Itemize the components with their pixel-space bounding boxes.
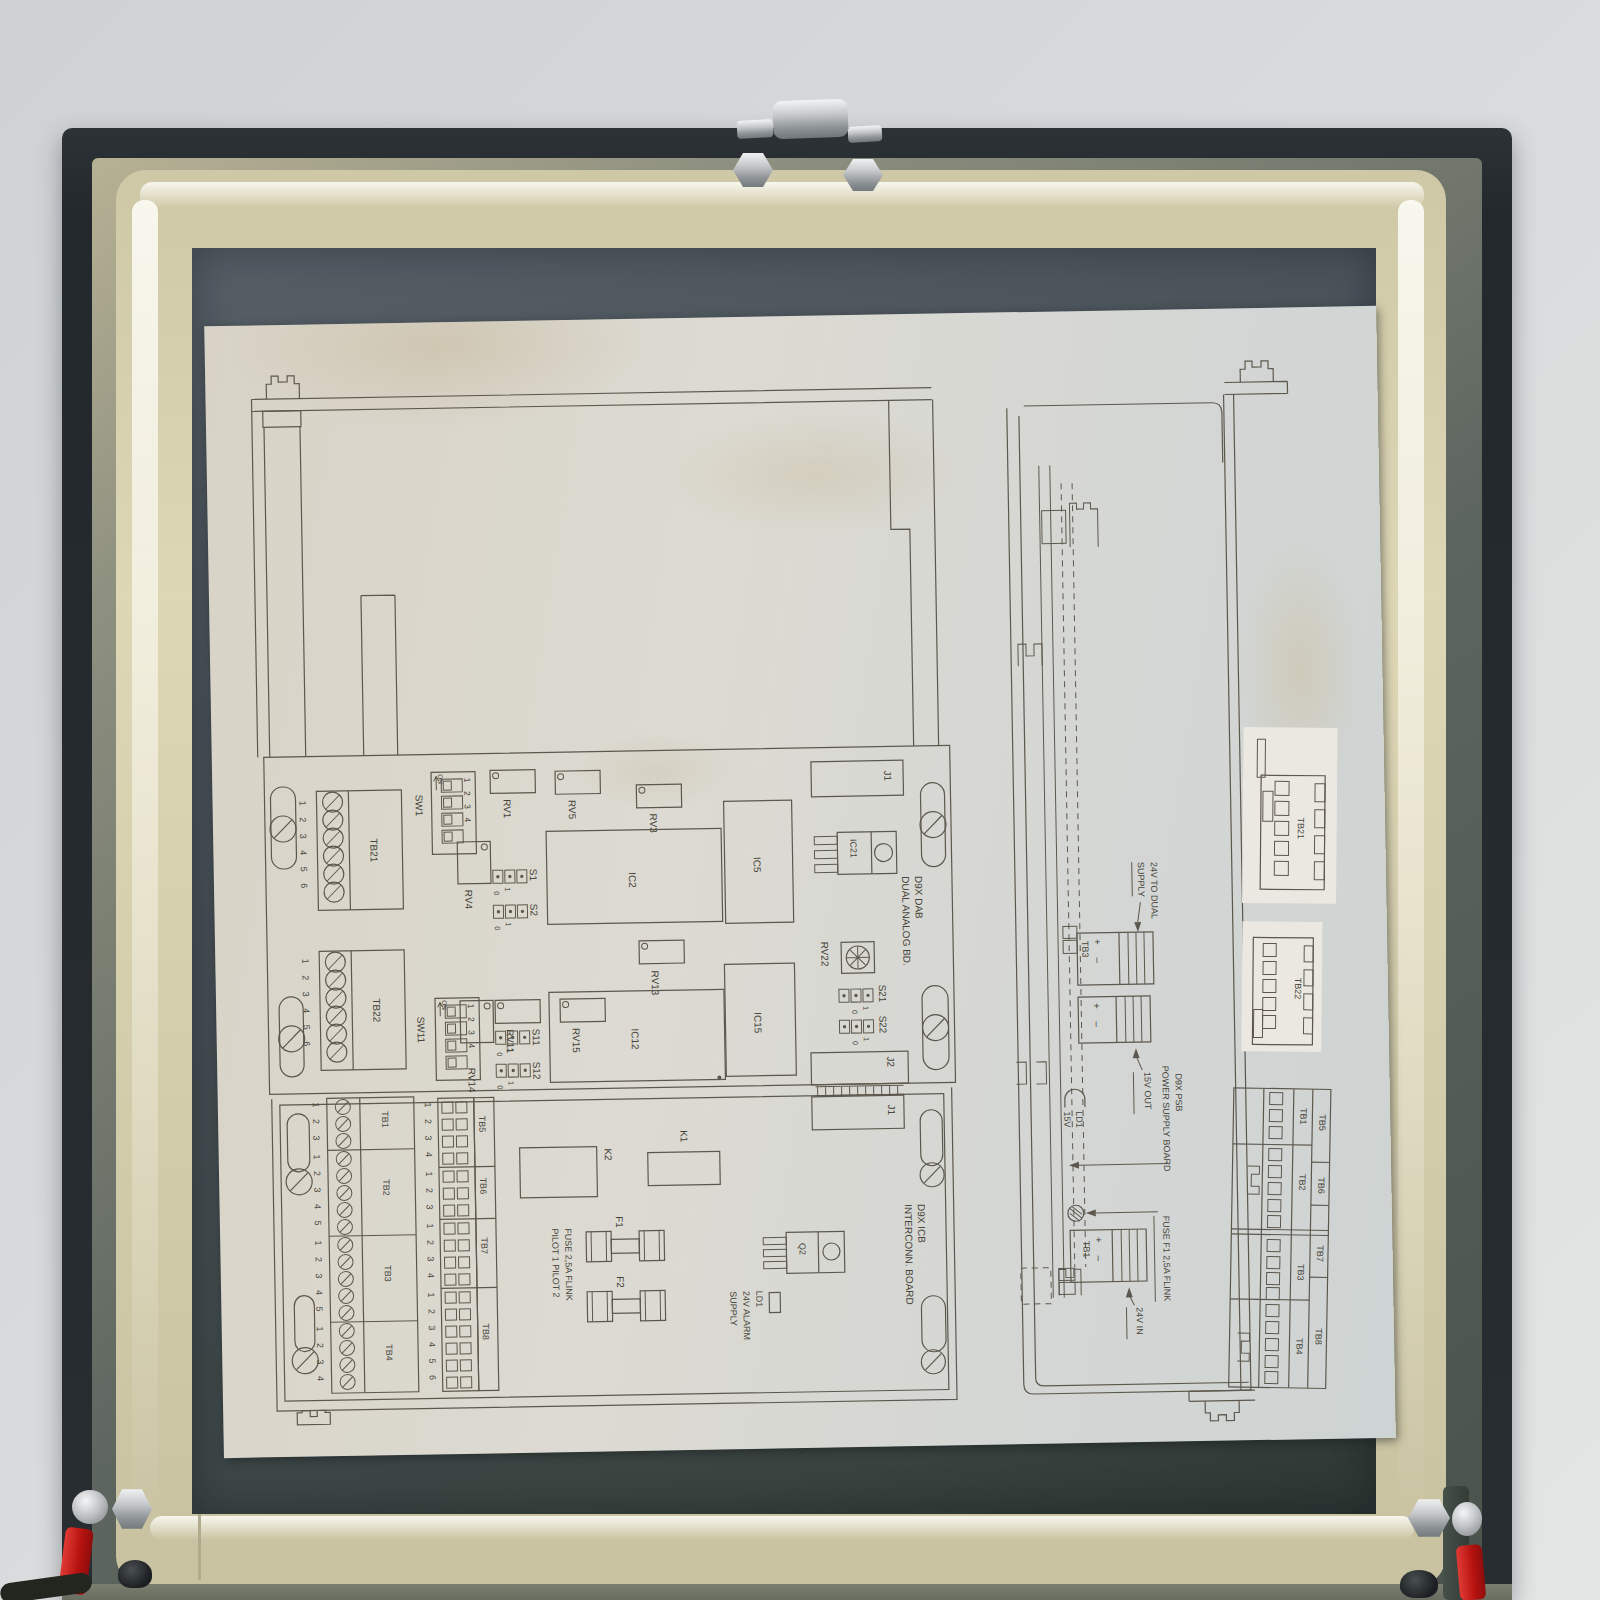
jumper-s21: S21 1 0	[839, 984, 889, 1014]
stack-tb5-label: TB5	[1317, 1114, 1327, 1131]
chassis-outline-lines	[251, 365, 939, 758]
ic15-chip: IC15	[724, 963, 796, 1076]
black-bolt-right	[1400, 1570, 1438, 1598]
psu-din-foot	[1205, 1400, 1239, 1421]
f2-label: F2	[615, 1276, 626, 1288]
ld1-note-line3: SUPPLY	[728, 1291, 739, 1326]
red-wire-terminal-right	[1456, 1544, 1487, 1600]
transistor-q2: Q2	[763, 1231, 845, 1273]
s22-pos1: 1	[862, 1037, 871, 1041]
fuse-f2: F2	[587, 1275, 666, 1321]
rv22-trimmer: RV22	[819, 941, 875, 974]
k2-label: K2	[603, 1148, 614, 1161]
tb21-detail-patch: TB21	[1242, 727, 1338, 904]
rv15-label: RV15	[571, 1028, 582, 1053]
stack-tb2-label: TB2	[1297, 1174, 1307, 1191]
rv4-label: RV4	[463, 890, 474, 910]
s2-pos1: 1	[504, 922, 513, 926]
tb4-label: TB4	[384, 1344, 394, 1361]
tb22-pin-numbers: 123456	[300, 959, 312, 1058]
gasket-seam	[198, 1512, 201, 1580]
diagram-paper-sheet: 123456 TB21 123456	[204, 306, 1396, 1458]
stack-tb4-label: TB4	[1294, 1338, 1304, 1355]
led-ld1-psu: LD1 15V	[1062, 1089, 1086, 1128]
stack-tb8-label: TB8	[1313, 1328, 1323, 1345]
icb-tb5-8-strip: 1234 123 1234 123456 TB5 TB6 TB7 TB8	[423, 1097, 499, 1391]
black-bolt-left	[118, 1560, 152, 1588]
s21-label: S21	[877, 984, 888, 1002]
psu-ld1-label: LD1	[1074, 1111, 1084, 1128]
tb5-8-windows	[442, 1102, 472, 1388]
pilot-note: PILOT 1 PILOT 2	[550, 1228, 561, 1297]
icb-j1-label: J1	[886, 1104, 897, 1115]
s12-pos1: 1	[506, 1081, 515, 1085]
tb7-pin-numbers: 1234	[425, 1223, 436, 1289]
rv1-label: RV1	[502, 799, 513, 819]
icb-board: J1 123 12345 12345 1234	[272, 1087, 958, 1425]
sw1-label: SW1	[413, 795, 424, 817]
tb1-polarity: + –	[1093, 1237, 1105, 1266]
psu-title-line1: D9X PSB	[1173, 1073, 1184, 1111]
ic2-label: IC2	[627, 872, 638, 888]
box-body-edge	[62, 1584, 1512, 1600]
tb6-pin-numbers: 123	[424, 1171, 435, 1221]
jumper-s1: S1 1 0	[492, 869, 539, 896]
jumper-s12: S12 1 0	[495, 1062, 542, 1090]
tb22-detail-patch: TB22	[1241, 921, 1322, 1052]
s11-pos0: 0	[495, 1052, 504, 1056]
s22-label: S22	[877, 1015, 888, 1033]
tb5-pin-numbers: 1234	[423, 1102, 434, 1168]
j2-dab-label: J2	[885, 1056, 896, 1067]
j2-connector-dab: J2	[811, 1051, 909, 1085]
ic15-label: IC15	[752, 1012, 763, 1034]
s11-pos1: 1	[506, 1048, 515, 1052]
psu-fuse-note: FUSE F1 2,5A FLINK	[1161, 1216, 1172, 1302]
psu-title-line2: POWER SUPPLY BOARD	[1160, 1066, 1172, 1172]
rv22-label: RV22	[819, 941, 830, 966]
tb5-label: TB5	[477, 1115, 487, 1132]
tb-stack-detail: TB1 TB2 TB3 TB4 TB5 TB6 TB7 TB8	[1229, 1088, 1331, 1389]
s22-pos0: 0	[851, 1041, 860, 1045]
gasket-highlight-right	[1398, 200, 1424, 1520]
tb3-block: + – TB3	[1063, 925, 1154, 986]
ic5-chip: IC5	[724, 800, 794, 923]
s12-label: S12	[531, 1062, 542, 1080]
tb3-label: TB3	[383, 1265, 393, 1282]
s21-pos1: 1	[861, 1006, 870, 1010]
icb-title-line1: D9X ICB	[916, 1204, 928, 1243]
rv5-label: RV5	[567, 800, 578, 820]
tb7-label: TB7	[479, 1237, 489, 1254]
s1-label: S1	[528, 869, 539, 882]
icb-title-line2: INTERCONN. BOARD	[903, 1204, 916, 1305]
psu-tb1-label: TB1	[1081, 1241, 1091, 1258]
dab-title-line2: DUAL ANALOG BD.	[900, 876, 913, 966]
tb21-label: TB21	[368, 838, 379, 863]
gasket-highlight-top	[140, 182, 1424, 208]
ic5-label: IC5	[752, 857, 763, 873]
icb-screw-pads	[285, 1103, 948, 1385]
j1-connector-dab: J1	[811, 760, 904, 797]
note-24v-to-dual-supply: 24V TO DUAL SUPPLY	[1132, 862, 1160, 932]
fuse-f1: F1	[586, 1215, 665, 1261]
dab-tb21-terminal: 123456 TB21	[297, 790, 403, 911]
stack-tb7-label: TB7	[1315, 1245, 1325, 1262]
sw1-digits: 1234	[462, 778, 473, 831]
tb22-detail-label: TB22	[1293, 978, 1303, 1000]
dab-tb22-terminal: 123456 TB22	[300, 950, 406, 1071]
icb-j1-connector: J1	[812, 1095, 905, 1130]
tb-strip-screws	[335, 1099, 355, 1389]
psu-bottom-bar	[1189, 1390, 1255, 1401]
sw11-digits: 1234	[466, 1004, 477, 1057]
tb1-block: + – TB1 24V IN	[1058, 1229, 1148, 1341]
psu-15v-label: 15V	[1062, 1111, 1072, 1127]
hinge-pin-left	[72, 1490, 108, 1524]
s1-pos0: 0	[492, 891, 501, 895]
ld1-note-line1: LD1	[754, 1291, 764, 1308]
tb21-detail-label: TB21	[1296, 818, 1306, 840]
j1-dab-label: J1	[882, 770, 893, 781]
tb1-pin-numbers: 123	[311, 1102, 322, 1152]
s2-label: S2	[528, 904, 539, 917]
s21-pos0: 0	[850, 1010, 859, 1014]
stack-tb1-label: TB1	[1298, 1108, 1308, 1125]
tb6-label: TB6	[478, 1177, 488, 1194]
out15v-block: + – 15V OUT	[1078, 996, 1153, 1115]
trimmer-rv4: RV4	[457, 841, 491, 909]
gasket-highlight-left	[132, 200, 158, 1530]
latch-tab-left	[737, 119, 774, 139]
rv13-label: RV13	[650, 970, 661, 995]
relay-k2: K2	[520, 1146, 615, 1198]
ic12-label: IC12	[630, 1028, 641, 1050]
relay-k1: K1	[647, 1129, 720, 1185]
tb1-label: TB1	[380, 1111, 390, 1128]
f1-label: F1	[614, 1216, 625, 1228]
photo-of-open-lid: 123456 TB21 123456	[0, 0, 1600, 1600]
tb-stack-windows	[1265, 1092, 1283, 1383]
sw11-label: SW11	[415, 1017, 426, 1044]
icb-tb-strip: 123 12345 12345 1234 TB1 TB2 TB3 TB4	[311, 1097, 419, 1394]
sw1-on-marking: ON	[437, 774, 444, 784]
dab-board: 123456 TB21 123456	[264, 745, 956, 1096]
trimmer-rv13: RV13	[639, 940, 685, 996]
stack-tb3-label: TB3	[1296, 1264, 1306, 1281]
dab-screw-pads	[269, 775, 950, 1081]
s11-label: S11	[531, 1029, 542, 1047]
note24-line2: SUPPLY	[1136, 862, 1147, 897]
rv3-label: RV3	[648, 813, 659, 833]
fuse-rating-note: FUSE 2,5A FLINK	[563, 1228, 574, 1301]
jumper-s22: S22 1 0	[839, 1015, 889, 1045]
tb2-pin-numbers: 12345	[312, 1154, 323, 1237]
tb8-label: TB8	[481, 1323, 491, 1340]
note24-line1: 24V TO DUAL	[1149, 862, 1160, 919]
trimmer-rv15: RV15	[560, 998, 606, 1053]
sw11-on-marking: ON	[441, 1000, 448, 1010]
tb2-label: TB2	[381, 1179, 391, 1196]
jumper-s2: S2 1 0	[492, 904, 539, 931]
out15v-note: 15V OUT	[1142, 1072, 1153, 1110]
out15v-polarity: + –	[1091, 1003, 1103, 1032]
tb3-pin-numbers: 12345	[313, 1240, 324, 1323]
ic2-chip: IC2	[546, 828, 723, 924]
s12-pos0: 0	[496, 1085, 505, 1089]
tb21-pin-numbers: 123456	[298, 801, 310, 900]
tb3-polarity: + –	[1092, 939, 1104, 968]
in24v-note: 24V IN	[1134, 1307, 1144, 1335]
dab-title-line1: D9X DAB	[913, 876, 925, 919]
trimmer-rv3: RV3	[636, 784, 682, 833]
led-ld1-icb: LD1 24V ALARM SUPPLY	[728, 1290, 781, 1340]
tb4-pin-numbers: 1234	[315, 1326, 326, 1392]
tb8-pin-numbers: 123456	[426, 1292, 438, 1391]
latch-roller[interactable]	[772, 99, 848, 140]
latch-tab-right	[848, 125, 883, 143]
board-layout-diagram: 123456 TB21 123456	[204, 306, 1396, 1458]
jumper-s11: S11 1 0	[495, 1029, 542, 1057]
ic21-regulator: IC21	[814, 831, 897, 874]
rv14-label: RV14	[466, 1068, 477, 1093]
gasket-highlight-bottom	[150, 1516, 1414, 1540]
ic21-label: IC21	[848, 839, 858, 858]
trimmer-rv5: RV5	[555, 770, 601, 819]
icb-din-foot	[297, 1410, 330, 1425]
tb3-label: TB3	[1080, 941, 1090, 958]
hinge-pin-right	[1452, 1502, 1482, 1536]
q2-label: Q2	[797, 1243, 807, 1255]
stack-tb6-label: TB6	[1316, 1177, 1326, 1194]
ld1-note-line2: 24V ALARM	[741, 1291, 752, 1340]
k1-label: K1	[678, 1130, 689, 1143]
s1-pos1: 1	[503, 887, 512, 891]
trimmer-rv1: RV1	[490, 770, 536, 819]
s2-pos0: 0	[493, 926, 502, 930]
tb22-label: TB22	[371, 998, 382, 1023]
